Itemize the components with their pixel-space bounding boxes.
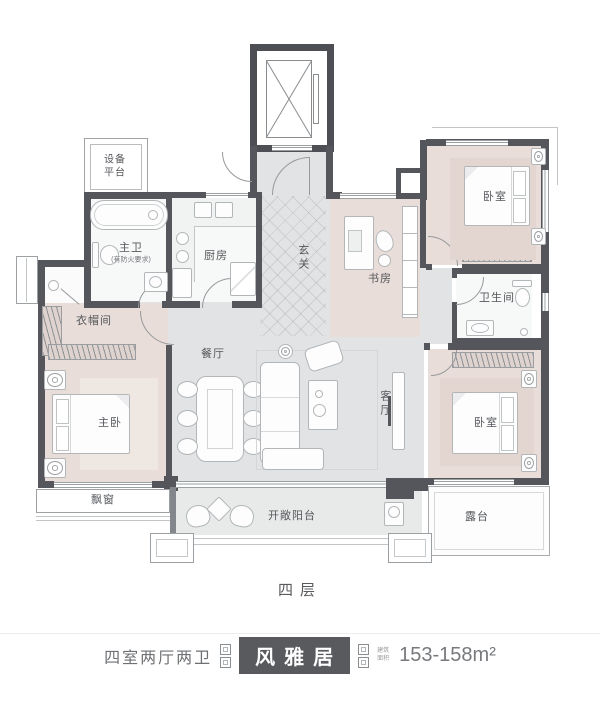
room-label-kitchen: 厨房 bbox=[204, 250, 228, 264]
wall bbox=[420, 140, 427, 200]
wall-niche-inner bbox=[401, 173, 421, 193]
tv-console bbox=[392, 372, 405, 450]
room-label-bedroom-bottom-right: 卧室 bbox=[474, 417, 498, 431]
study-cabinet bbox=[402, 206, 418, 318]
blanket-fold bbox=[116, 395, 129, 408]
area-value-text: 153-158m² bbox=[399, 644, 496, 667]
toilet-tank bbox=[512, 280, 532, 287]
coffee-table-decor bbox=[315, 390, 323, 398]
wall bbox=[38, 481, 54, 488]
nightstand bbox=[521, 370, 537, 388]
wall bbox=[448, 343, 548, 350]
bay-window-left-line bbox=[26, 258, 27, 302]
room-label-dining: 餐厅 bbox=[201, 348, 225, 362]
plant bbox=[388, 506, 400, 518]
elevator-car-icon bbox=[266, 60, 312, 138]
lamp-icon bbox=[47, 373, 63, 387]
footer-banner: 四室两厅两卫 风雅居 建筑面积 153-158m² bbox=[0, 637, 600, 674]
elevator-rail bbox=[313, 74, 319, 124]
wall bbox=[232, 301, 262, 308]
shower-head bbox=[48, 280, 59, 291]
kitchen-sink bbox=[215, 202, 233, 218]
room-label-bay-window: 飘窗 bbox=[91, 494, 115, 508]
sofa-chaise bbox=[262, 448, 324, 470]
layout-type-text: 四室两厅两卫 bbox=[104, 644, 212, 668]
pillow bbox=[501, 425, 514, 451]
wall bbox=[452, 268, 542, 274]
elevator-door bbox=[272, 145, 312, 151]
wall bbox=[166, 301, 200, 308]
wall-corner-block bbox=[386, 478, 414, 499]
lamp-icon bbox=[524, 457, 534, 469]
window bbox=[542, 170, 549, 232]
side-table bbox=[378, 254, 391, 267]
bed-line bbox=[499, 393, 500, 453]
room-label-terrace: 露台 bbox=[465, 511, 489, 525]
toilet-tank bbox=[92, 242, 99, 268]
bed-line bbox=[511, 167, 512, 225]
footing-inner bbox=[156, 539, 188, 557]
nightstand bbox=[44, 458, 66, 478]
balcony-railing bbox=[194, 544, 388, 545]
lamp-icon bbox=[524, 373, 534, 385]
room-label-living: 客厅 bbox=[377, 390, 391, 418]
lamp-icon bbox=[534, 231, 543, 242]
wall bbox=[38, 260, 90, 267]
terrace-inner-line bbox=[434, 492, 544, 550]
ornament-icon bbox=[220, 644, 231, 668]
floor-shower-room bbox=[40, 266, 86, 303]
wall bbox=[420, 200, 426, 268]
nightstand bbox=[531, 228, 546, 245]
wall bbox=[84, 301, 140, 308]
room-label-bedroom-top-right: 卧室 bbox=[483, 191, 507, 205]
bay-window-left bbox=[16, 256, 38, 304]
bathtub-drain bbox=[148, 210, 158, 220]
lamp-icon bbox=[281, 347, 290, 356]
bay-window-sill bbox=[36, 520, 170, 521]
room-label-equipment-platform: 设备平台 bbox=[104, 155, 128, 180]
frame-line bbox=[557, 127, 558, 185]
nightstand bbox=[531, 148, 546, 165]
area-label-text: 建筑面积 bbox=[377, 648, 391, 662]
bay-window-sill bbox=[36, 516, 170, 517]
fridge bbox=[230, 262, 256, 296]
dining-chair bbox=[177, 438, 198, 455]
floor-lamp bbox=[278, 344, 293, 359]
wardrobe bbox=[48, 344, 136, 360]
room-label-master-bath-note: (有防火要求) bbox=[111, 257, 151, 266]
pillow bbox=[513, 198, 526, 223]
wall bbox=[256, 192, 262, 308]
balcony-railing bbox=[194, 538, 388, 539]
kitchen-cabinet bbox=[172, 268, 192, 298]
nightstand bbox=[521, 454, 537, 472]
door-leaf-entry bbox=[309, 158, 310, 195]
window bbox=[340, 193, 396, 199]
room-label-cloakroom: 衣帽间 bbox=[76, 315, 112, 329]
pillow bbox=[56, 426, 69, 451]
dining-chair bbox=[177, 410, 198, 427]
room-label-master-bedroom: 主卧 bbox=[98, 417, 122, 431]
divider-line bbox=[0, 633, 600, 634]
wall bbox=[452, 268, 457, 278]
frame-line bbox=[432, 127, 558, 128]
window bbox=[542, 293, 549, 311]
balcony-slider bbox=[176, 481, 386, 488]
lamp-icon bbox=[534, 151, 543, 162]
wall bbox=[424, 343, 430, 350]
sink-basin bbox=[149, 276, 162, 288]
pillow bbox=[501, 397, 514, 423]
wardrobe bbox=[452, 352, 534, 368]
kitchen-counter bbox=[172, 198, 256, 227]
kitchen-sink bbox=[194, 202, 212, 218]
wall-balcony bbox=[170, 487, 176, 537]
floor-caption: 四层 bbox=[0, 579, 600, 600]
nightstand bbox=[44, 370, 66, 390]
stove-burner bbox=[176, 250, 189, 263]
sofa-cushion-line bbox=[261, 397, 299, 398]
floor-foyer-tile bbox=[260, 196, 326, 336]
window bbox=[54, 482, 152, 488]
room-label-bathroom: 卫生间 bbox=[479, 292, 515, 306]
window bbox=[434, 479, 514, 485]
wall-corner-block bbox=[414, 478, 428, 491]
pillow bbox=[513, 171, 526, 196]
room-label-foyer: 玄关 bbox=[295, 244, 309, 272]
sink-basin bbox=[471, 323, 489, 333]
window bbox=[446, 140, 508, 146]
toilet-bowl bbox=[515, 288, 530, 307]
blanket-fold bbox=[465, 167, 478, 180]
lamp-icon bbox=[47, 461, 63, 475]
dining-chair bbox=[177, 381, 198, 398]
room-label-balcony: 开敞阳台 bbox=[268, 510, 316, 524]
floorplan-canvas: 设备平台 主卫 (有防火要求) 厨房 玄关 书房 卧室 卫生间 衣帽间 主卧 餐… bbox=[0, 0, 600, 701]
wall bbox=[166, 345, 172, 485]
wall bbox=[541, 343, 549, 485]
stove-burner bbox=[176, 232, 189, 245]
unit-name-badge: 风雅居 bbox=[239, 637, 350, 674]
room-label-study: 书房 bbox=[368, 273, 392, 287]
blanket-fold bbox=[453, 393, 466, 406]
footing-inner bbox=[394, 539, 426, 557]
floor-corridor bbox=[424, 268, 452, 344]
pillow bbox=[56, 399, 69, 424]
dining-table-inner bbox=[207, 389, 233, 449]
coffee-table-decor bbox=[313, 404, 326, 417]
ornament-icon bbox=[358, 644, 369, 668]
floor-drain bbox=[520, 328, 528, 336]
bed-line bbox=[70, 395, 71, 453]
laptop bbox=[348, 230, 362, 252]
sofa-cushion-line bbox=[261, 431, 299, 432]
room-label-master-bath: 主卫 bbox=[119, 242, 143, 256]
